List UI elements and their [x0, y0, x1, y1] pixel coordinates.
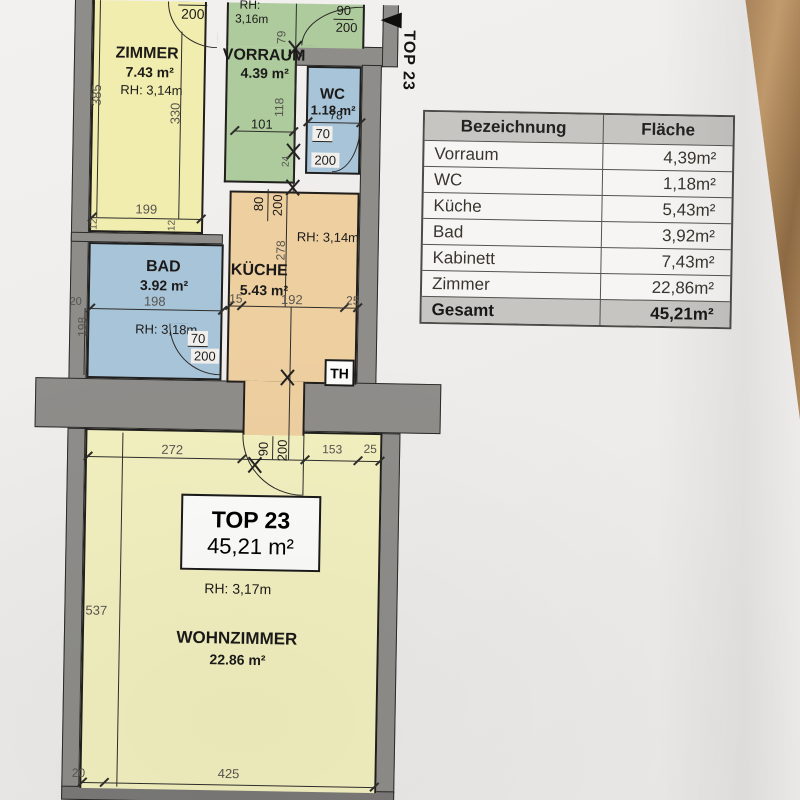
- dim-25-wz: 25: [363, 442, 377, 456]
- table-total-value: 45,21m²: [600, 300, 730, 327]
- area-table: Bezeichnung Fläche Vorraum 4,39m² WC 1,1…: [419, 110, 735, 329]
- dim-537: 537: [85, 603, 107, 618]
- table-cell-value: 3,92m²: [601, 222, 731, 249]
- table-row: WC 1,18m²: [424, 166, 732, 197]
- door-swing-mark: [248, 458, 262, 472]
- dim-20-bad: 20: [70, 296, 82, 308]
- wall-above-wc: [295, 46, 385, 68]
- floorplan-drawing: ZIMMER 7.43 m² RH: 3,14m VORRAUM 4.39 m²…: [0, 0, 800, 800]
- dim-330: 330: [167, 103, 182, 125]
- th-label: TH: [330, 365, 349, 381]
- unit-label-box: TOP 23 45,21 m²: [180, 494, 321, 572]
- dim-wz-door-90: 90: [256, 442, 271, 457]
- table-cell-label: Bad: [423, 219, 602, 247]
- table-cell-label: Küche: [423, 193, 602, 221]
- room-rh-vorraum-line2: 3,16m: [235, 12, 269, 27]
- table-cell-value: 22,86m²: [600, 274, 730, 301]
- table-row: Kabinett 7,43m²: [422, 244, 730, 275]
- dim-25-kueche: 25: [346, 294, 360, 308]
- dim-12-a: 12: [88, 218, 99, 229]
- dim-78: 78: [329, 108, 343, 122]
- floorplan-photo: ZIMMER 7.43 m² RH: 3,14m VORRAUM 4.39 m²…: [0, 0, 800, 800]
- dim-20-wz: 20: [72, 766, 86, 780]
- dim-zimmer-door-200: 200: [178, 5, 208, 24]
- room-rh-kueche: RH: 3,14m: [297, 229, 359, 245]
- room-rh-zimmer: RH: 3,14m: [120, 82, 182, 98]
- table-cell-value: 4,39m²: [603, 144, 733, 171]
- dim-385: 385: [89, 84, 104, 106]
- entrance-arrow-icon: [381, 12, 402, 28]
- table-cell-value: 7,43m²: [601, 248, 731, 275]
- room-rh-vorraum-line1: RH:: [239, 0, 260, 12]
- dim-192: 192: [281, 292, 303, 307]
- dim-272: 272: [161, 442, 183, 457]
- table-cell-label: WC: [424, 167, 603, 195]
- dim-118: 118: [272, 98, 286, 117]
- table-header-bezeichnung: Bezeichnung: [425, 112, 604, 143]
- room-corridor: [242, 381, 305, 436]
- room-rh-wohnzimmer: RH: 3,17m: [204, 580, 271, 597]
- table-cell-label: Zimmer: [422, 271, 601, 299]
- dim-entrance-200: 200: [336, 20, 358, 35]
- door-swing-mark: [286, 180, 300, 194]
- table-row: Zimmer 22,86m²: [422, 270, 730, 301]
- dim-278: 278: [273, 240, 287, 260]
- th-box: TH: [324, 359, 354, 387]
- table-row: Vorraum 4,39m²: [424, 140, 732, 171]
- dim-101: 101: [251, 116, 273, 131]
- dim-15: 15: [229, 291, 243, 305]
- table-total-row: Gesamt 45,21m²: [421, 296, 729, 327]
- dim-bad-200: 200: [191, 348, 219, 363]
- dim-425: 425: [218, 766, 240, 781]
- room-area-vorraum: 4.39 m²: [240, 65, 289, 82]
- table-cell-label: Kabinett: [422, 245, 601, 273]
- dim-wz-door-200: 200: [274, 439, 289, 461]
- room-area-zimmer: 7.43 m²: [125, 64, 174, 81]
- dim-153: 153: [322, 442, 342, 456]
- room-label-kueche: KÜCHE: [231, 262, 288, 281]
- dim-kueche-door-80: 80: [251, 197, 266, 212]
- table-cell-value: 1,18m²: [602, 170, 732, 197]
- table-cell-label: Vorraum: [424, 141, 603, 169]
- room-label-wc: WC: [320, 86, 345, 103]
- wall-middle-band: [35, 377, 442, 434]
- table-row: Küche 5,43m²: [423, 192, 731, 223]
- dim-wc-200: 200: [311, 152, 339, 167]
- dim-wc-70: 70: [312, 126, 333, 142]
- table-header-flaeche: Fläche: [603, 115, 733, 145]
- table-cell-value: 5,43m²: [602, 196, 732, 223]
- room-label-bad: BAD: [146, 258, 181, 277]
- dim-kueche-door-200: 200: [270, 194, 285, 216]
- table-total-label: Gesamt: [421, 297, 600, 325]
- room-area-wohnzimmer: 22.86 m²: [209, 651, 265, 668]
- room-label-vorraum: VORRAUM: [223, 46, 306, 65]
- dim-79: 79: [274, 31, 288, 45]
- room-wohnzimmer: [79, 428, 382, 793]
- door-swing-mark: [280, 370, 294, 384]
- table-header-row: Bezeichnung Fläche: [425, 112, 733, 145]
- room-area-bad: 3.92 m²: [140, 277, 189, 294]
- unit-title: TOP 23: [212, 506, 291, 534]
- table-row: Bad 3,92m²: [423, 218, 731, 249]
- dim-bad-70: 70: [188, 331, 209, 347]
- dim-12-b: 12: [166, 220, 177, 231]
- entrance-unit-label: TOP 23: [398, 30, 417, 91]
- dim-entrance-90: 90: [333, 3, 354, 20]
- unit-area: 45,21 m²: [207, 533, 294, 561]
- dim-198-h: 198: [144, 293, 166, 308]
- dim-24: 24: [281, 156, 292, 167]
- room-label-zimmer: ZIMMER: [115, 44, 178, 63]
- room-label-wohnzimmer: WOHNZIMMER: [176, 628, 297, 650]
- dim-198-v: 198: [75, 317, 89, 337]
- dim-199: 199: [135, 201, 157, 216]
